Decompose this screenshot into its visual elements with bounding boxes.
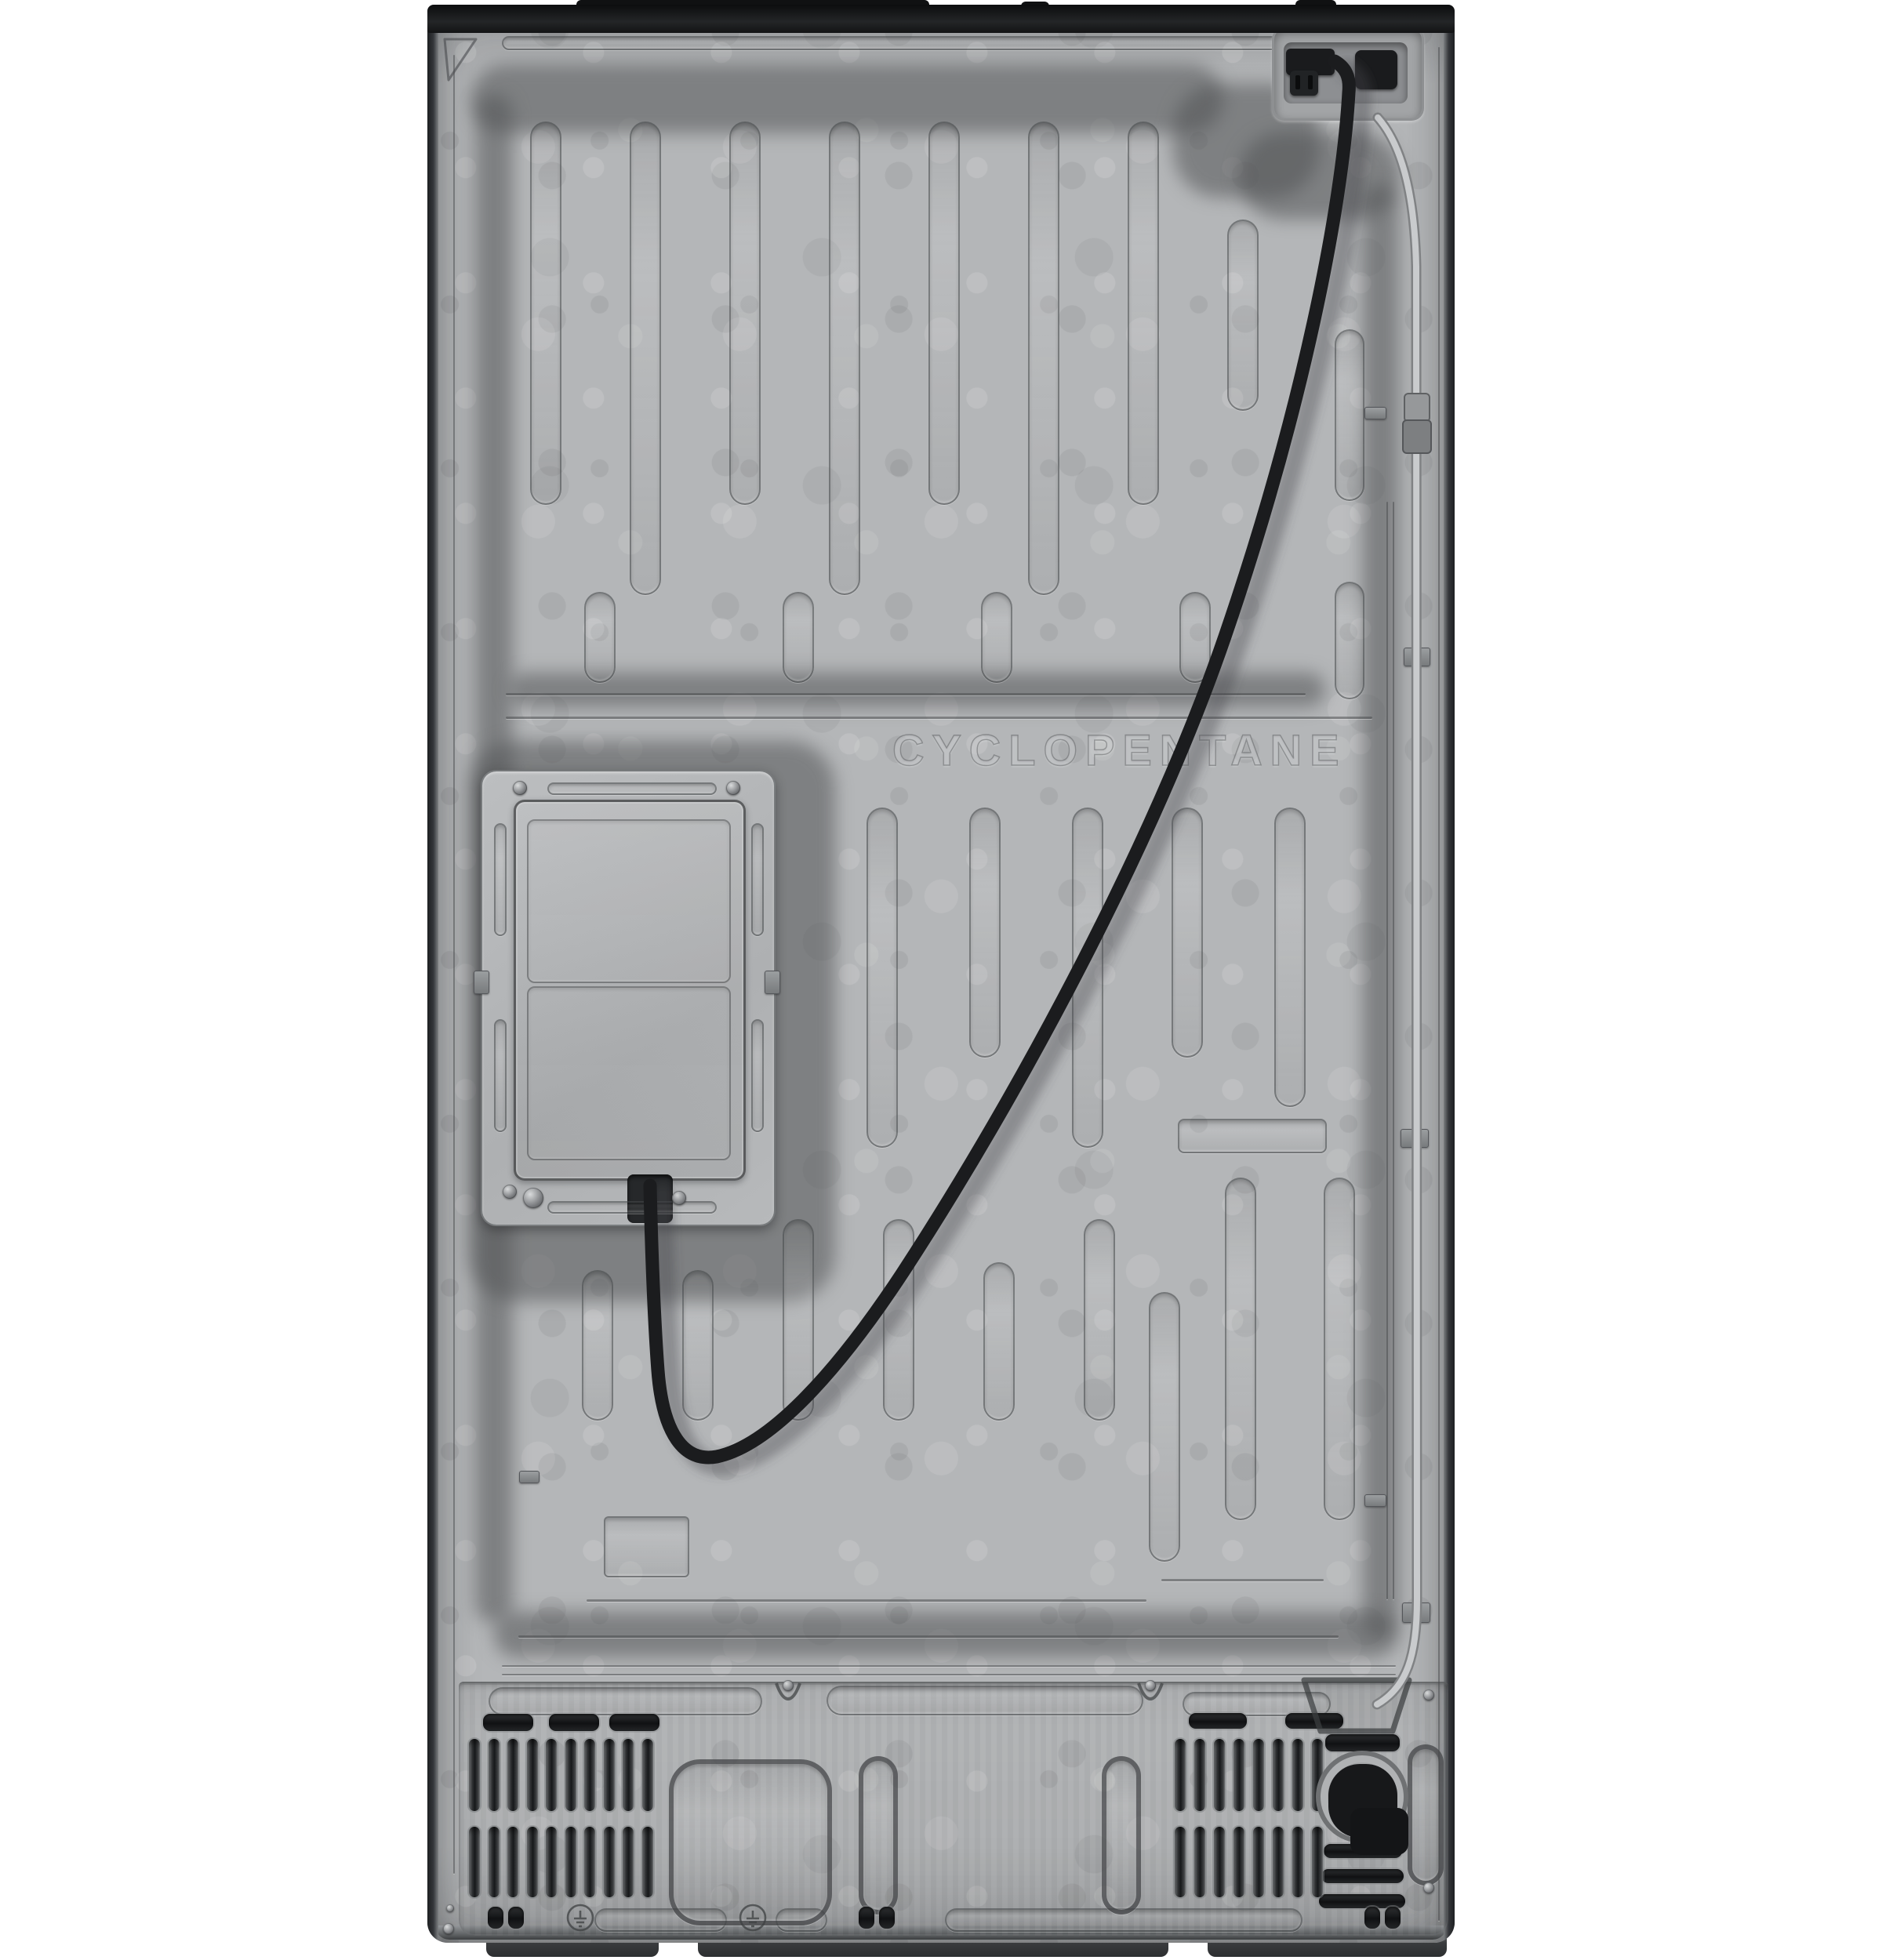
vent-grille-slat	[1233, 1739, 1244, 1811]
emboss-slot-thick	[669, 1759, 832, 1926]
emboss-line	[506, 717, 1372, 719]
emboss-line	[587, 1599, 1146, 1602]
emboss-line	[518, 1635, 1339, 1638]
screw	[672, 1191, 686, 1205]
emboss-slot	[1179, 592, 1211, 683]
emboss-slot	[1227, 220, 1259, 411]
vent-grille-slat	[584, 1827, 595, 1897]
emboss-slot	[928, 122, 960, 505]
emboss-slot	[1028, 122, 1059, 595]
cabinet-right-edge	[1444, 6, 1455, 1943]
plug-prong-left	[1295, 75, 1300, 89]
vent-slot	[1189, 1713, 1247, 1729]
emboss-slot	[682, 1270, 714, 1421]
emboss-slot	[829, 122, 860, 595]
vent-slot	[488, 1907, 503, 1929]
emboss-slot	[969, 808, 1001, 1058]
emboss-slot	[1084, 1219, 1115, 1421]
vent-grille-slat	[604, 1827, 615, 1897]
emboss-line	[1386, 502, 1388, 1599]
emboss-line	[502, 1665, 1396, 1667]
screw	[446, 1904, 454, 1912]
cabinet-left-edge	[427, 6, 438, 1943]
refrigerator-back-photo: CYCLOPENTANE	[0, 0, 1882, 1960]
emboss-line	[502, 1674, 1396, 1675]
vent-slot	[1385, 1907, 1401, 1929]
cord-exit-notch	[627, 1174, 673, 1223]
screw	[503, 1185, 517, 1199]
plug-prong-right	[1308, 75, 1313, 89]
vent-slot	[549, 1714, 599, 1731]
vent-grille-slat	[1214, 1739, 1225, 1811]
mounting-clip	[1401, 1129, 1429, 1148]
emboss-slot	[502, 36, 1379, 50]
vent-grille-slat	[1175, 1827, 1186, 1897]
emboss-slot	[489, 1687, 762, 1715]
screw	[513, 781, 527, 795]
mounting-clip	[1404, 648, 1430, 666]
emboss-slot	[584, 592, 616, 683]
emboss-slot	[1335, 582, 1364, 699]
cyclopentane-embossed-text: CYCLOPENTANE	[892, 724, 1346, 775]
screw	[783, 1680, 794, 1691]
mounting-clip	[1364, 407, 1386, 419]
emboss-slot	[547, 1201, 717, 1214]
vent-grille-slat	[489, 1739, 500, 1811]
emboss-slot	[1225, 1178, 1256, 1520]
screw	[1145, 1680, 1156, 1691]
emboss-slot	[1072, 808, 1103, 1148]
emboss-slot	[530, 122, 561, 505]
vent-grille-slat	[1292, 1739, 1303, 1811]
emboss-slot	[981, 592, 1012, 683]
emboss-slot	[751, 823, 764, 936]
vent-slot	[879, 1907, 895, 1929]
emboss-line	[1161, 1579, 1324, 1581]
vent-slot	[483, 1714, 533, 1731]
cord-retainer-box	[1355, 50, 1397, 89]
vent-grille-slat	[1273, 1739, 1284, 1811]
mounting-clip	[474, 971, 489, 994]
vent-grille-slat	[584, 1739, 595, 1811]
mounting-clip	[519, 1471, 540, 1483]
emboss-slot	[783, 592, 814, 683]
emboss-slot	[582, 1270, 613, 1421]
vent-grille-slat	[623, 1827, 634, 1897]
vent-grille-slat	[489, 1827, 500, 1897]
emboss-slot	[547, 782, 717, 795]
mounting-clip	[1402, 1602, 1430, 1623]
vent-grille-slat	[1312, 1739, 1323, 1811]
emboss-slot	[983, 1262, 1015, 1421]
vent-grille-slat	[469, 1827, 480, 1897]
emboss-slot	[1274, 808, 1306, 1107]
emboss-slot	[1128, 122, 1159, 505]
emboss-slot	[883, 1219, 914, 1421]
emboss-rect	[1178, 1119, 1327, 1153]
vent-grille-slat	[1253, 1827, 1264, 1897]
screw	[443, 1923, 454, 1934]
emboss-slot-thick	[859, 1756, 898, 1915]
vent-grille-slat	[546, 1827, 557, 1897]
vent-slot	[609, 1714, 659, 1731]
condenser-channel-shadow	[494, 1612, 1397, 1657]
vent-grille-slat	[565, 1739, 576, 1811]
vent-grille-slat	[507, 1739, 518, 1811]
emboss-rect	[604, 1516, 689, 1577]
vent-slot	[1321, 1869, 1404, 1883]
emboss-slot	[827, 1686, 1143, 1715]
emboss-slot	[783, 1219, 814, 1421]
emboss-slot	[1149, 1292, 1180, 1562]
emboss-slot	[1172, 808, 1203, 1058]
emboss-slot	[494, 1019, 507, 1132]
vent-grille-slat	[1253, 1739, 1264, 1811]
vent-grille-slat	[1273, 1827, 1284, 1897]
power-plug-face	[1290, 71, 1318, 96]
mounting-clip	[1364, 1494, 1386, 1507]
vent-grille-slat	[1194, 1739, 1205, 1811]
service-cover-upper-panel	[527, 819, 731, 983]
vent-grille-slat	[1214, 1827, 1225, 1897]
vent-grille-slat	[1312, 1827, 1323, 1897]
emboss-slot	[630, 122, 661, 595]
vent-grille-slat	[1233, 1827, 1244, 1897]
vent-grille-slat	[527, 1739, 538, 1811]
vent-grille-slat	[623, 1739, 634, 1811]
emboss-slot	[494, 823, 507, 936]
screw	[1423, 1690, 1434, 1700]
mounting-clip	[765, 971, 780, 994]
vent-grille-slat	[1292, 1827, 1303, 1897]
screw	[1423, 1882, 1434, 1893]
vent-grille-slat	[546, 1739, 557, 1811]
vent-slot	[1285, 1713, 1343, 1729]
vent-grille-slat	[469, 1739, 480, 1811]
screw	[726, 781, 740, 795]
vent-grille-slat	[642, 1739, 653, 1811]
vent-grille-slat	[604, 1739, 615, 1811]
emboss-line	[1438, 47, 1440, 1921]
vent-slot	[859, 1907, 874, 1929]
emboss-line	[453, 55, 455, 1874]
screw	[523, 1188, 543, 1208]
vent-slot	[1324, 1844, 1402, 1858]
service-cover-lower-panel	[527, 986, 731, 1160]
vent-slot	[1364, 1907, 1380, 1929]
vent-grille-slat	[527, 1827, 538, 1897]
vent-grille-slat	[565, 1827, 576, 1897]
emboss-line	[506, 693, 1306, 695]
emboss-slot	[867, 808, 898, 1148]
emboss-slot-thick	[1102, 1756, 1141, 1915]
top-hinge-cap	[427, 5, 1455, 33]
emboss-slot	[1335, 329, 1364, 501]
vent-grille-slat	[642, 1827, 653, 1897]
emboss-slot	[729, 122, 761, 505]
emboss-slot	[751, 1019, 764, 1132]
vent-grille-slat	[1194, 1827, 1205, 1897]
vent-grille-slat	[1175, 1739, 1186, 1811]
emboss-slot	[1324, 1178, 1355, 1520]
vent-slot	[508, 1907, 524, 1929]
vent-slot	[1325, 1734, 1400, 1751]
vent-grille-slat	[507, 1827, 518, 1897]
emboss-line	[1393, 502, 1394, 1599]
